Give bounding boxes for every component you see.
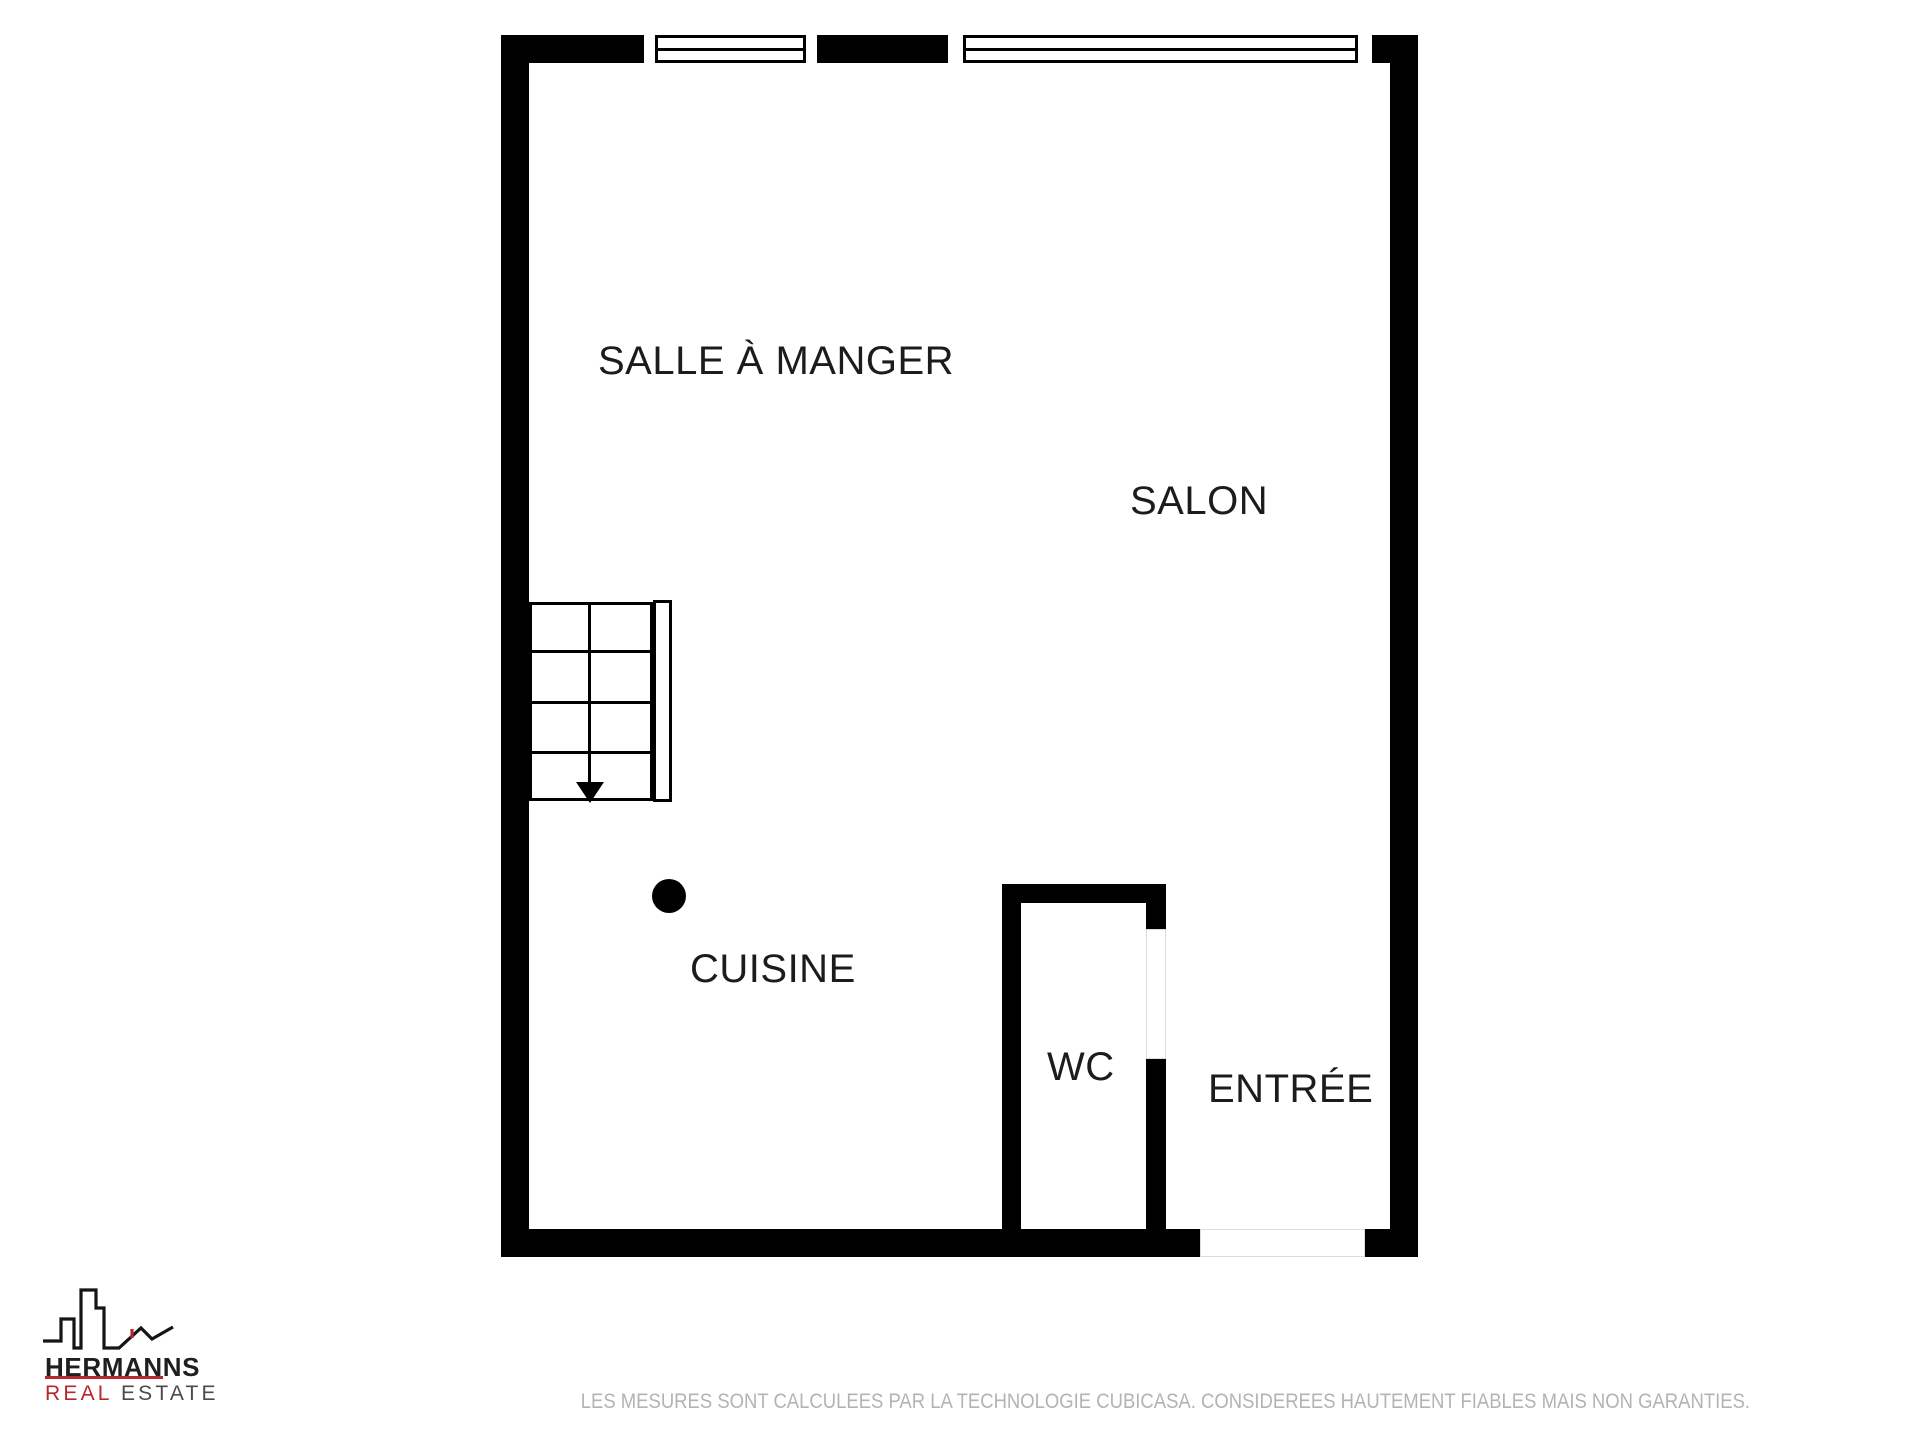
stair-handrail <box>653 600 672 802</box>
room-label-salle-a-manger: SALLE À MANGER <box>598 341 954 381</box>
wc-wall-right-lower <box>1146 1059 1166 1229</box>
exterior-wall-bottom-left-segment <box>501 1229 1200 1257</box>
floor-plan-page: SALLE À MANGER SALON CUISINE WC ENTRÉE H… <box>0 0 1920 1440</box>
exterior-wall-bottom-right-segment <box>1365 1229 1418 1257</box>
entrance-door-opening <box>1200 1229 1365 1257</box>
wc-wall-right-upper <box>1146 884 1166 929</box>
measurement-disclaimer: LES MESURES SONT CALCULEES PAR LA TECHNO… <box>501 1390 1418 1414</box>
exterior-wall-left <box>501 35 529 1257</box>
wc-door-opening <box>1146 929 1166 1059</box>
window-2-icon <box>963 35 1358 63</box>
logo-tagline: REAL ESTATE <box>45 1382 219 1406</box>
disclaimer-text: LES MESURES SONT CALCULEES PAR LA TECHNO… <box>581 1390 1750 1414</box>
stair-tread <box>529 701 653 704</box>
room-label-wc: WC <box>1047 1047 1115 1087</box>
stair-walkline <box>588 602 591 784</box>
logo-tagline-real: REAL <box>45 1382 112 1405</box>
stair-tread <box>529 650 653 653</box>
exterior-wall-right <box>1390 35 1418 1257</box>
window-1-icon <box>655 35 806 63</box>
room-label-cuisine: CUISINE <box>690 949 856 989</box>
logo-red-divider <box>45 1376 163 1379</box>
skyline-icon <box>42 1278 177 1352</box>
wc-wall-left <box>1002 884 1021 1229</box>
stair-down-arrow-icon <box>576 782 604 803</box>
room-label-salon: SALON <box>1130 481 1268 521</box>
wc-wall-top <box>1002 884 1166 903</box>
logo-tagline-estate: ESTATE <box>121 1382 219 1405</box>
exterior-wall-top-middle-segment <box>817 35 948 63</box>
kitchen-column-dot <box>652 879 686 913</box>
stair-tread <box>529 751 653 754</box>
room-label-entree: ENTRÉE <box>1208 1069 1373 1109</box>
